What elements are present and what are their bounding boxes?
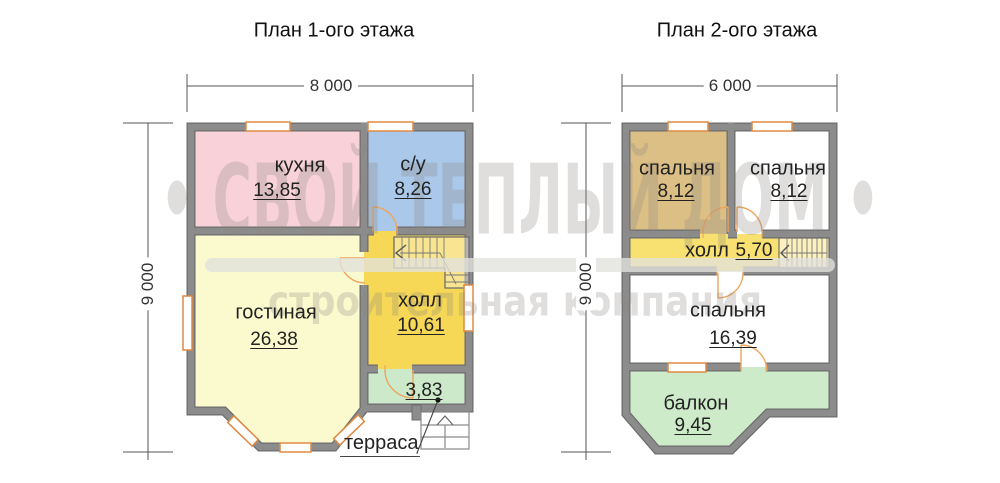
plan2-width-dimension: 6 000: [704, 76, 757, 96]
room-label-bedroom1: спальня: [639, 158, 715, 181]
room-label-bathroom: с/у: [400, 154, 426, 177]
room-area-living: 26,38: [250, 329, 298, 351]
plan1-height-dimension: 9 000: [138, 258, 158, 311]
plan2-height-dimension: 9 000: [576, 258, 596, 311]
entrance-steps: [421, 412, 469, 449]
bedroom1-window: [668, 122, 708, 131]
plan1-width-dimension: 8 000: [305, 76, 358, 96]
room-area-hall2: 5,70: [736, 240, 773, 262]
bedroom2-window: [752, 122, 792, 131]
living-left-window: [183, 296, 192, 350]
room-label-balcony: балкон: [664, 393, 729, 416]
room-area-balcony: 9,45: [675, 415, 712, 437]
plan2-title: План 2-ого этажа: [657, 20, 818, 43]
plan1-geometry: [123, 74, 473, 460]
room-area-bedroom3: 16,39: [709, 328, 757, 350]
hall-right-window: [464, 285, 473, 331]
room-area-bathroom: 8,26: [395, 179, 432, 201]
room-area-bedroom1: 8,12: [658, 181, 695, 203]
kitchen-floor: [191, 127, 364, 231]
balcony-window: [668, 363, 706, 372]
bay-center-window: [280, 443, 311, 452]
plan1-title: План 1-ого этажа: [254, 20, 415, 43]
terrace-wall-stub: [412, 405, 421, 420]
room-label-hall1: холл: [398, 290, 442, 313]
room-label-living: гостиная: [235, 302, 316, 325]
room-label-bedroom3: спальня: [690, 300, 766, 323]
stairs-second-floor: [779, 238, 829, 268]
floorplan-page: • СВОЙ ТЕПЛЫЙ ДОМ • строительная компани…: [0, 0, 1000, 483]
terrace-callout-label: терраса: [340, 432, 420, 457]
room-area-bedroom2: 8,12: [771, 181, 808, 203]
room-label-bedroom2: спальня: [750, 158, 826, 181]
floorplans-drawing: [0, 0, 1000, 483]
room-area-terrace: 3,83: [406, 380, 443, 402]
room-label-hall2: холл: [685, 240, 729, 263]
room-area-hall1: 10,61: [397, 315, 445, 337]
bathroom-window: [368, 122, 413, 131]
room-area-kitchen: 13,85: [253, 180, 301, 202]
room-label-kitchen: кухня: [275, 155, 326, 178]
kitchen-window: [246, 122, 290, 131]
